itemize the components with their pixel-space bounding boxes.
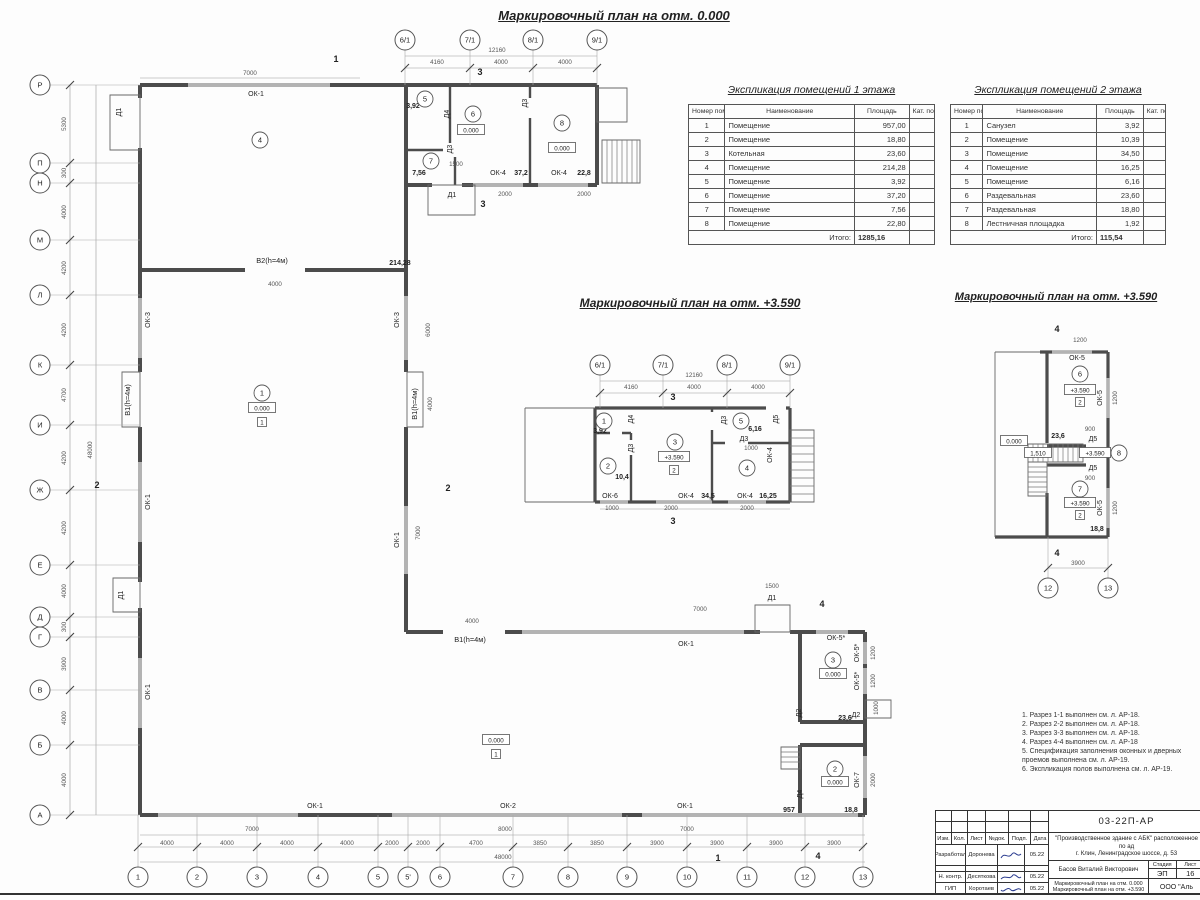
axis-bubble-label: 3 <box>255 873 259 882</box>
plan-label: 8000 <box>498 826 512 833</box>
floor-type-text: 1 <box>260 419 264 426</box>
plan-label: 4 <box>819 599 824 609</box>
plan-label: 3900 <box>827 840 841 847</box>
company-name: ООО "Аль <box>1149 879 1200 895</box>
axis-bubble-label: Д <box>37 613 42 622</box>
plan-label: Д1 <box>768 595 777 602</box>
axis-bubble-label: 4 <box>316 873 320 882</box>
plan-label: 2000 <box>664 505 678 512</box>
plan-label: Д2 <box>796 709 803 718</box>
plan-label: 1200 <box>1112 501 1119 515</box>
plan-label: 12160 <box>685 372 703 379</box>
room-number: 6 <box>1078 370 1082 379</box>
title-block: Изм. Кол. Лист №док. Подп. Дата Разработ… <box>935 810 1200 894</box>
plan-label: 4000 <box>340 840 354 847</box>
axis-bubble-label: Н <box>37 179 42 188</box>
plan-label: 2000 <box>385 840 399 847</box>
floor-type-text: 1 <box>494 751 498 758</box>
plan-title-right: Маркировочный план на отм. +3.590 <box>950 291 1162 303</box>
axis-bubble-label: 9/1 <box>592 36 602 45</box>
plan-label: 7,56 <box>412 170 426 177</box>
table-row: 8Лестничная площадка1,92 <box>951 217 1166 231</box>
elevation-text: 0.000 <box>827 779 843 786</box>
total-value: 115,54 <box>1097 231 1144 245</box>
axis-bubble-label: Б <box>38 741 43 750</box>
plan-label: Д1 <box>448 192 457 199</box>
col-list: Лист <box>968 833 986 844</box>
plan-label: 1000 <box>744 445 758 452</box>
axis-bubble-label: Р <box>37 81 42 90</box>
plan-label: 2000 <box>740 505 754 512</box>
col-area: Площадь <box>1097 105 1144 119</box>
plan-label: 3850 <box>533 840 547 847</box>
room-number: 3 <box>673 438 677 447</box>
room-number: 7 <box>429 157 433 166</box>
plan-label: 3850 <box>590 840 604 847</box>
chief-name: Басов Виталий Викторович <box>1049 861 1149 878</box>
plan-label: 6,16 <box>748 426 762 433</box>
plan-label: 2 <box>94 480 99 490</box>
plan-label: 10,4 <box>615 474 629 481</box>
col-number: Номер помещ. <box>689 105 725 119</box>
plan-label: 48000 <box>87 441 94 459</box>
plan-label: 7000 <box>415 526 422 540</box>
room-number: 8 <box>560 119 564 128</box>
axis-bubble-label: В <box>37 686 42 695</box>
axis-bubble-label: 12 <box>1044 584 1052 593</box>
plan-label: 34,5 <box>701 493 715 500</box>
axis-bubble-label: 9 <box>625 873 629 882</box>
axis-bubble-label: Ж <box>37 486 44 495</box>
signature <box>998 883 1025 895</box>
staff-name: Десяткова <box>966 872 998 882</box>
plan-label: 37,2 <box>514 170 528 177</box>
sheet-value: 16 <box>1177 869 1200 878</box>
plan-label: 3 <box>670 392 675 402</box>
axis-bubble-label: 1 <box>136 873 140 882</box>
axis-bubble-label: А <box>37 811 42 820</box>
plan-label: 3900 <box>1071 560 1085 567</box>
axis-bubble-label: 8/1 <box>528 36 538 45</box>
title-block-right: 03-22П-АР "Производственное здание с АБК… <box>1049 811 1200 893</box>
plan-label: 18,8 <box>1090 526 1104 533</box>
plan-label: 4000 <box>280 840 294 847</box>
plan-label: 48000 <box>494 854 512 861</box>
plan-label: 4200 <box>61 451 68 465</box>
axis-bubble-label: 12 <box>801 873 809 882</box>
staff-row-gip: ГИП Коротаев 05.22 <box>936 883 1048 895</box>
table-row: 1Помещение957,00 <box>689 119 935 133</box>
plan-label: 2 <box>445 483 450 493</box>
note-item: 6. Экспликация полов выполнена см. л. АР… <box>1022 766 1200 775</box>
plan-label: 23,6 <box>1051 433 1065 440</box>
plan-label: 4000 <box>220 840 234 847</box>
plan-label: 16,25 <box>759 493 777 500</box>
document-number: 03-22П-АР <box>1049 811 1200 833</box>
plan-label: 300 <box>61 167 68 178</box>
plan-label: В1(h=4м) <box>454 635 486 644</box>
axis-bubble-label: 5' <box>405 873 411 882</box>
plan-label: 2000 <box>870 773 877 787</box>
table-row: 4Помещение16,25 <box>951 161 1166 175</box>
axis-bubble-label: Г <box>38 633 42 642</box>
plan-label: 1000 <box>873 701 880 715</box>
walls-mid-plan <box>595 408 790 502</box>
note-item: 3. Разрез 3-3 выполнен см. л. АР-18. <box>1022 730 1200 739</box>
plan-label: 1500 <box>449 161 463 168</box>
plan-label: Д5 <box>773 415 780 424</box>
note-item: 1. Разрез 1-1 выполнен см. л. АР-18. <box>1022 712 1200 721</box>
room-number: 7 <box>1078 485 1082 494</box>
table-row: 5Помещение3,92 <box>689 175 935 189</box>
plan-label: 4200 <box>61 521 68 535</box>
plan-label: 3 <box>477 67 482 77</box>
plan-label: 957 <box>783 807 795 814</box>
plan-label: ОК-4 <box>551 170 567 177</box>
plan-label: ОК-4 <box>737 493 753 500</box>
col-doc: №док. <box>986 833 1009 844</box>
staff-row-ncontrol: Н. контр. Десяткова 05.22 <box>936 872 1048 883</box>
plan-label: В2(h=4м) <box>256 256 288 265</box>
staff-name: Коротаев <box>966 883 998 895</box>
plan-label: ОК-4 <box>490 170 506 177</box>
elevation-text: 0.000 <box>488 737 504 744</box>
project-line2: г. Клин, Ленинградское шоссе, д. 53 <box>1076 850 1177 857</box>
plan-label: 3,92 <box>406 103 420 110</box>
note-item: 4. Разрез 4-4 выполнен см. л. АР-18 <box>1022 739 1200 748</box>
plan-label: 3900 <box>769 840 783 847</box>
plan-label: 4000 <box>61 584 68 598</box>
table-total-row: Итого: 115,54 <box>951 231 1166 245</box>
col-izm: Изм. <box>936 833 952 844</box>
note-item: 2. Разрез 2-2 выполнен см. л. АР-18. <box>1022 721 1200 730</box>
table-header-row: Номер помещ. Наименование Площадь Кат. п… <box>689 105 935 119</box>
room-number: 4 <box>258 136 262 145</box>
plan-label: 2000 <box>577 191 591 198</box>
stage-value: ЭП <box>1149 869 1177 878</box>
plan-label: 1 <box>715 853 720 863</box>
plan-label: ОК-1 <box>677 803 693 810</box>
elevation-text: 1,510 <box>1030 450 1046 457</box>
axis-bubble-label: 8/1 <box>722 361 732 370</box>
plan-label: 4000 <box>751 384 765 391</box>
plan-label: 214,28 <box>389 260 411 267</box>
plan-label: ОК-5 <box>1097 390 1104 406</box>
plan-label: ОК-5* <box>827 635 846 642</box>
plan-label: 12160 <box>488 47 506 54</box>
plan-label: ОК-1 <box>145 684 152 700</box>
plan-label: 4000 <box>160 840 174 847</box>
plan-label: Д1 <box>118 591 125 600</box>
drawing-title-line2: Маркировочный план на отм. +3.590 <box>1053 887 1144 893</box>
plan-label: 1200 <box>870 674 877 688</box>
plan-label: 4 <box>1054 548 1059 558</box>
room-number: 8 <box>1117 449 1121 458</box>
col-podp: Подп. <box>1009 833 1031 844</box>
table-row: 7Раздевальная18,80 <box>951 203 1166 217</box>
col-name: Наименование <box>983 105 1097 119</box>
table-row: 7Помещение7,56 <box>689 203 935 217</box>
plan-label: 3 <box>670 516 675 526</box>
plan-label: 4700 <box>469 840 483 847</box>
table-body: 1Помещение957,002Помещение18,803Котельна… <box>689 119 935 231</box>
plan-label: ОК-2 <box>500 803 516 810</box>
axis-bubble-label: Л <box>38 291 43 300</box>
total-label: Итого: <box>689 231 855 245</box>
room-number: 2 <box>833 765 837 774</box>
staff-role: Н. контр. <box>936 872 966 882</box>
plan-label: 1200 <box>1112 391 1119 405</box>
col-number: Номер помещ. <box>951 105 983 119</box>
plan-label: ОК-7 <box>854 772 861 788</box>
elevation-text: +3.590 <box>1070 387 1090 394</box>
plan-label: Д1 <box>116 108 123 117</box>
room-number: 3 <box>831 656 835 665</box>
plan-label: 900 <box>1085 475 1096 482</box>
title-block-left: Изм. Кол. Лист №док. Подп. Дата Разработ… <box>936 811 1049 893</box>
elevation-text: 0.000 <box>1006 438 1022 445</box>
signature-scribble <box>999 850 1023 860</box>
plan-label: Д3 <box>522 99 529 108</box>
plan-label: 3900 <box>61 657 68 671</box>
drawing-title-cell: Маркировочный план на отм. 0.000 Маркиро… <box>1049 879 1149 895</box>
room-number: 1 <box>260 389 264 398</box>
table-row: 1Санузел3,92 <box>951 119 1166 133</box>
plan-label: 2000 <box>498 191 512 198</box>
floor-type-text: 2 <box>672 467 676 474</box>
col-name: Наименование <box>725 105 855 119</box>
plan-label: 22,8 <box>577 170 591 177</box>
project-description: "Производственное здание с АБК" располож… <box>1049 833 1200 861</box>
plan-label: 300 <box>61 621 68 632</box>
plan-label: Д5 <box>1089 465 1098 472</box>
axis-bubble-label: М <box>37 236 43 245</box>
elevation-text: +3.590 <box>664 454 684 461</box>
plan-label: 3 <box>480 199 485 209</box>
plan-label: 7000 <box>693 606 707 613</box>
stage-sheet-grid: Стадия Лист ЭП 16 <box>1149 861 1200 878</box>
sheet-label: Лист <box>1177 861 1200 869</box>
plan-label: 1200 <box>870 646 877 660</box>
col-data: Дата <box>1031 833 1049 844</box>
plan-label: 4 <box>815 851 820 861</box>
plan-label: ОК-1 <box>394 532 401 548</box>
room-schedule-floor2: Экспликация помещений 2 этажа Номер поме… <box>950 84 1166 245</box>
plan-label: 4000 <box>558 59 572 66</box>
plan-label: ОК-3 <box>394 312 401 328</box>
axis-bubble-label: 2 <box>195 873 199 882</box>
plan-label: 4200 <box>61 261 68 275</box>
plan-label: 4700 <box>61 388 68 402</box>
room-number: 2 <box>606 462 610 471</box>
col-area: Площадь <box>855 105 910 119</box>
plan-label: 1200 <box>1073 337 1087 344</box>
plan-label: ОК-1 <box>307 803 323 810</box>
axis-bubble-label: 11 <box>743 873 751 882</box>
plan-label: 3900 <box>710 840 724 847</box>
plan-label: Д4 <box>797 790 804 799</box>
plan-label: 4000 <box>268 281 282 288</box>
stage-label: Стадия <box>1149 861 1177 869</box>
room-schedule-2-title: Экспликация помещений 2 этажа <box>950 84 1166 96</box>
plan-label: 4000 <box>61 205 68 219</box>
plan-label: ОК-1 <box>678 641 694 648</box>
staff-date: 05.22 <box>1025 845 1049 865</box>
plan-label: ОК-4 <box>678 493 694 500</box>
plan-label: 4160 <box>624 384 638 391</box>
axis-bubble-label: 9/1 <box>785 361 795 370</box>
table-row: 6Раздевальная23,60 <box>951 189 1166 203</box>
notes-list: 1. Разрез 1-1 выполнен см. л. АР-18.2. Р… <box>1022 712 1200 775</box>
floor-type-text: 2 <box>1078 512 1082 519</box>
plan-label: 1500 <box>765 583 779 590</box>
note-item: 5. Спецификация заполнения оконных и две… <box>1022 748 1200 766</box>
plan-label: ОК-1 <box>145 494 152 510</box>
axis-bubble-label: 8 <box>566 873 570 882</box>
staff-name: Доронева <box>966 845 998 865</box>
stairs-mid-plan <box>790 430 814 502</box>
plan-label: ОК-5* <box>854 643 861 662</box>
plan-label: Д4 <box>628 415 635 424</box>
plan-label: ОК-5 <box>1097 500 1104 516</box>
drawing-sheet: ОК-17000Д1ОК-3В1(h=4м)ОК-1Д1ОК-1В2(h=4м)… <box>0 0 1200 900</box>
table-row: 2Помещение10,39 <box>951 133 1166 147</box>
col-cat: Кат. пом. <box>909 105 934 119</box>
room-schedule-1-title: Экспликация помещений 1 этажа <box>688 84 935 96</box>
axis-bubble-label: 6 <box>438 873 442 882</box>
plan-label: 2000 <box>416 840 430 847</box>
plan-label: ОК-4 <box>767 447 774 463</box>
outline-mid-thin <box>525 408 595 502</box>
axis-bubble-label: 10 <box>683 873 691 882</box>
plan-label: Д5 <box>1089 436 1098 443</box>
axis-bubble-label: Е <box>37 561 42 570</box>
room-number: 1 <box>602 417 606 426</box>
plan-label: 5300 <box>61 117 68 131</box>
signature-scribble <box>999 884 1023 894</box>
elevation-text: 0.000 <box>825 671 841 678</box>
plan-label: Д3 <box>628 444 635 453</box>
total-label: Итого: <box>951 231 1097 245</box>
elevation-text: 0.000 <box>254 405 270 412</box>
plan-label: ОК-5* <box>854 671 861 690</box>
plan-label: ОК-1 <box>248 91 264 98</box>
plan-label: 7000 <box>243 70 257 77</box>
signature-scribble <box>999 872 1023 882</box>
plan-label: 6000 <box>425 323 432 337</box>
axis-bubble-label: 7 <box>511 873 515 882</box>
axis-bubble-label: 7/1 <box>465 36 475 45</box>
plan-title-mid: Маркировочный план на отм. +3.590 <box>545 296 835 310</box>
plan-label: 900 <box>1085 426 1096 433</box>
axis-bubble-label: 13 <box>1104 584 1112 593</box>
room-number: 5 <box>423 95 427 104</box>
table-row: 6Помещение37,20 <box>689 189 935 203</box>
revision-header-row: Изм. Кол. Лист №док. Подп. Дата <box>936 833 1048 845</box>
elevation-text: +3.590 <box>1070 500 1090 507</box>
plan-label: 4000 <box>427 397 434 411</box>
room-number: 5 <box>739 417 743 426</box>
plan-label: Д2 <box>852 712 861 719</box>
axis-bubble-label: К <box>38 361 43 370</box>
plan-label: 4200 <box>61 323 68 337</box>
staff-row-developer: Разработал Доронева 05.22 <box>936 845 1048 866</box>
plan-label: 1000 <box>605 505 619 512</box>
axis-bubble-label: 13 <box>859 873 867 882</box>
table-row: 8Помещение22,80 <box>689 217 935 231</box>
stairs-main-topright <box>602 140 640 183</box>
table-body: 1Санузел3,922Помещение10,393Помещение34,… <box>951 119 1166 231</box>
elevation-text: 0.000 <box>463 127 479 134</box>
plan-label: 4160 <box>430 59 444 66</box>
staff-role: Разработал <box>936 845 966 865</box>
col-cat: Кат. пом. <box>1143 105 1165 119</box>
table-row: 3Помещение34,50 <box>951 147 1166 161</box>
floor-type-text: 2 <box>1078 399 1082 406</box>
room-schedule-floor1: Экспликация помещений 1 этажа Номер поме… <box>688 84 935 245</box>
axis-bubble-label: 5 <box>376 873 380 882</box>
plan-label: ОК-5 <box>1069 355 1085 362</box>
stairs-main-bottomright <box>781 747 800 769</box>
room-number: 4 <box>745 464 749 473</box>
table-row: 3Котельная23,60 <box>689 147 935 161</box>
axis-bubble-label: 7/1 <box>658 361 668 370</box>
signature <box>998 845 1025 865</box>
plan-title-main: Маркировочный план на отм. 0.000 <box>454 8 774 23</box>
staff-date: 05.22 <box>1025 872 1049 882</box>
plan-label: ОК-3 <box>145 312 152 328</box>
axis-bubble-label: П <box>37 159 42 168</box>
plan-label: 23,6 <box>838 715 852 722</box>
signature <box>998 872 1025 882</box>
plan-label: 1 <box>333 54 338 64</box>
total-value: 1285,16 <box>855 231 910 245</box>
plan-label: ОК-6 <box>602 493 618 500</box>
drawing-title-line1: Маркировочный план на отм. 0.000 <box>1054 881 1142 887</box>
plan-label: 4000 <box>61 711 68 725</box>
elevation-text: 0.000 <box>554 145 570 152</box>
staff-date: 05.22 <box>1025 883 1049 895</box>
table-header-row: Номер помещ. Наименование Площадь Кат. п… <box>951 105 1166 119</box>
axis-bubble-label: 6/1 <box>595 361 605 370</box>
axis-bubble-label: И <box>37 421 42 430</box>
plan-label: 3900 <box>650 840 664 847</box>
table-row: 5Помещение6,16 <box>951 175 1166 189</box>
plan-label: 4000 <box>465 618 479 625</box>
plan-label: Д4 <box>444 110 451 119</box>
plan-label: В1(h=4м) <box>123 384 132 416</box>
col-kol: Кол. <box>952 833 968 844</box>
plan-label: 4000 <box>494 59 508 66</box>
plan-label: 4000 <box>687 384 701 391</box>
walls-mid-interior <box>595 408 790 502</box>
table-row: 2Помещение18,80 <box>689 133 935 147</box>
plan-label: Д3 <box>740 436 749 443</box>
table-total-row: Итого: 1285,16 <box>689 231 935 245</box>
elevation-text: +3.590 <box>1085 450 1105 457</box>
plan-label: 4000 <box>61 773 68 787</box>
plan-label: Д3 <box>447 145 454 154</box>
plan-label: 4 <box>1054 324 1059 334</box>
plan-label: 18,8 <box>844 807 858 814</box>
staff-role: ГИП <box>936 883 966 895</box>
plan-label: В1(h=4м) <box>410 388 419 420</box>
plan-label: Д3 <box>721 416 728 425</box>
project-line1: "Производственное здание с АБК" располож… <box>1055 835 1198 850</box>
room-number: 6 <box>471 110 475 119</box>
table-row: 4Помещение214,28 <box>689 161 935 175</box>
axis-bubble-label: 6/1 <box>400 36 410 45</box>
